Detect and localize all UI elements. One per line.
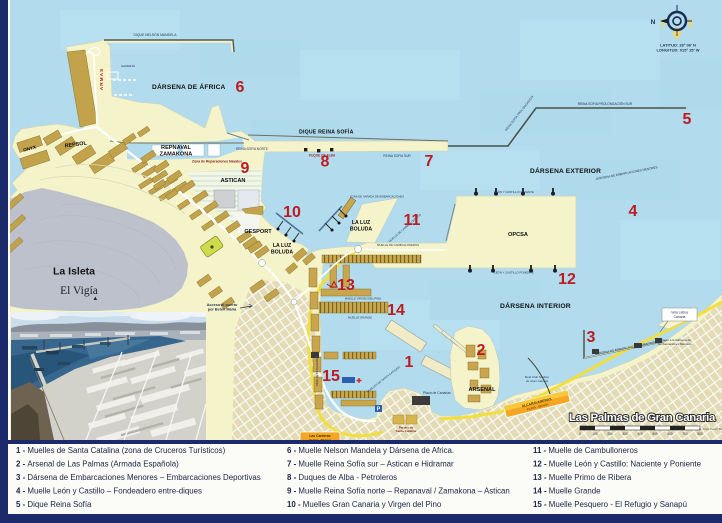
svg-text:Zona de Reparaciones Navales: Zona de Reparaciones Navales xyxy=(192,160,242,164)
svg-text:7 - Muelle Reina Sofía sur – A: 7 - Muelle Reina Sofía sur – Astican e H… xyxy=(287,460,454,469)
svg-text:5: 5 xyxy=(683,111,692,128)
svg-text:8 - Duques de Alba - Petrolero: 8 - Duques de Alba - Petroleros xyxy=(287,473,397,482)
svg-text:300: 300 xyxy=(622,432,628,436)
svg-text:8: 8 xyxy=(321,154,330,171)
svg-text:7: 7 xyxy=(425,153,434,170)
svg-text:LA LUZ: LA LUZ xyxy=(273,243,292,249)
svg-text:DÁRSENA EXTERIOR: DÁRSENA EXTERIOR xyxy=(530,166,601,175)
svg-text:MUELLE DE CAMBULLONEROS: MUELLE DE CAMBULLONEROS xyxy=(377,243,419,247)
svg-text:GAVIERAS: GAVIERAS xyxy=(121,64,135,68)
svg-text:REINA SOFIA SUR: REINA SOFIA SUR xyxy=(383,154,411,158)
svg-text:de Gran Canaria: de Gran Canaria xyxy=(526,379,549,383)
svg-text:ARSENAL: ARSENAL xyxy=(468,387,496,393)
svg-text:ARMAS: ARMAS xyxy=(99,68,105,91)
svg-text:4 - Muelle León y Castillo – F: 4 - Muelle León y Castillo – Fondeadero … xyxy=(16,487,202,496)
svg-text:ZONA DE VARADA DE EMBARCACIONE: ZONA DE VARADA DE EMBARCACIONES xyxy=(350,195,404,199)
svg-text:600: 600 xyxy=(667,432,673,436)
svg-text:11 - Muelle de Cambulloneros: 11 - Muelle de Cambulloneros xyxy=(533,446,638,455)
svg-text:4: 4 xyxy=(629,203,638,220)
svg-text:100: 100 xyxy=(592,432,598,436)
svg-text:por Belén María: por Belén María xyxy=(208,308,237,312)
svg-text:6: 6 xyxy=(236,79,245,96)
svg-text:Las Palmas de Gran Canaria: Las Palmas de Gran Canaria xyxy=(569,412,716,424)
svg-text:La Isleta: La Isleta xyxy=(53,266,95,278)
svg-text:2: 2 xyxy=(477,342,486,359)
svg-text:6 - Muelle Nelson Mandela y Dá: 6 - Muelle Nelson Mandela y Dársena de A… xyxy=(287,446,454,455)
svg-text:BOLUDA: BOLUDA xyxy=(271,249,293,255)
svg-text:REPNAVAL: REPNAVAL xyxy=(161,145,192,151)
svg-text:12: 12 xyxy=(558,271,576,288)
svg-text:REINA SOFIA PROLONGACIÓN SUR: REINA SOFIA PROLONGACIÓN SUR xyxy=(578,101,633,106)
svg-text:Santa Catalina: Santa Catalina xyxy=(396,429,417,433)
svg-text:3 - Dársena de Embarcaciones M: 3 - Dársena de Embarcaciones Menores – E… xyxy=(16,473,261,482)
svg-text:ASTICAN: ASTICAN xyxy=(221,178,246,184)
svg-text:P: P xyxy=(377,407,381,413)
svg-text:DIQUE NELSON MANDELA: DIQUE NELSON MANDELA xyxy=(134,33,178,37)
svg-text:LONGITUD: 015° 25' W: LONGITUD: 015° 25' W xyxy=(656,48,699,53)
svg-text:BOLUDA: BOLUDA xyxy=(350,226,372,232)
svg-text:2 - Arsenal de Las Palmas (Arm: 2 - Arsenal de Las Palmas (Armada Españo… xyxy=(16,460,179,469)
svg-text:3: 3 xyxy=(587,329,596,346)
svg-text:Embarcaciones Menores: Embarcaciones Menores xyxy=(658,342,692,346)
svg-text:10 - Muelles Gran Canaria y Vi: 10 - Muelles Gran Canaria y Virgen del P… xyxy=(287,500,442,509)
svg-text:El Vigía: El Vigía xyxy=(60,285,98,297)
svg-text:9: 9 xyxy=(241,160,250,177)
svg-text:13: 13 xyxy=(337,277,355,294)
svg-text:11: 11 xyxy=(404,212,421,229)
svg-text:DIQUE REINA SOFÍA: DIQUE REINA SOFÍA xyxy=(299,128,354,136)
svg-text:m. Gran Puerto Base: m. Gran Puerto Base xyxy=(699,427,722,431)
svg-text:500: 500 xyxy=(652,432,658,436)
svg-text:GESPORT: GESPORT xyxy=(244,229,272,235)
svg-text:REINA SOFIA NORTE: REINA SOFIA NORTE xyxy=(236,147,268,151)
svg-text:LEÓN Y CASTILLO NACIENTE: LEÓN Y CASTILLO NACIENTE xyxy=(494,189,534,194)
svg-text:0: 0 xyxy=(579,432,581,436)
svg-text:9 - Muelle Reina Sofía norte –: 9 - Muelle Reina Sofía norte – Repanaval… xyxy=(287,487,510,496)
svg-text:10: 10 xyxy=(283,204,301,221)
svg-text:N: N xyxy=(651,19,656,26)
svg-text:Acceso al puerto: Acceso al puerto xyxy=(207,303,238,307)
svg-text:MUELLE PESQUERO: MUELLE PESQUERO xyxy=(315,357,319,386)
svg-text:12 - Muelle León y Castillo: N: 12 - Muelle León y Castillo: Naciente y … xyxy=(533,460,702,469)
svg-text:DÁRSENA INTERIOR: DÁRSENA INTERIOR xyxy=(500,301,571,310)
svg-text:LEÓN Y CASTILLO PONIENTE: LEÓN Y CASTILLO PONIENTE xyxy=(494,270,534,275)
svg-text:200: 200 xyxy=(607,432,613,436)
svg-text:14 - Muelle Grande: 14 - Muelle Grande xyxy=(533,487,601,496)
svg-text:13 - Muelle Primo de Ribera: 13 - Muelle Primo de Ribera xyxy=(533,473,632,482)
svg-text:700: 700 xyxy=(682,432,688,436)
svg-text:LA LUZ: LA LUZ xyxy=(352,220,371,226)
svg-text:Plaza de Canarias: Plaza de Canarias xyxy=(423,391,451,395)
svg-text:14: 14 xyxy=(387,302,405,319)
svg-text:15 - Muelle Pesquero - El Refu: 15 - Muelle Pesquero - El Refugio y Sana… xyxy=(533,500,687,509)
svg-text:15: 15 xyxy=(322,368,340,385)
svg-text:800: 800 xyxy=(697,432,703,436)
svg-text:Vela Latina: Vela Latina xyxy=(671,311,688,315)
svg-text:MUELLE VIRGEN DEL PINO: MUELLE VIRGEN DEL PINO xyxy=(345,297,382,301)
svg-text:OPCSA: OPCSA xyxy=(508,232,528,238)
svg-text:1 - Muelles de Santa Catalina: 1 - Muelles de Santa Catalina (zona de C… xyxy=(16,446,226,455)
svg-text:400: 400 xyxy=(637,432,643,436)
svg-text:Canaria: Canaria xyxy=(674,315,686,319)
svg-text:ZAMAKONA: ZAMAKONA xyxy=(160,152,193,158)
svg-text:1: 1 xyxy=(405,354,414,371)
svg-text:MUELLE GRANDE: MUELLE GRANDE xyxy=(348,316,372,320)
svg-text:5 - Dique Reina Sofía: 5 - Dique Reina Sofía xyxy=(16,500,92,509)
svg-text:DÁRSENA DE ÁFRICA: DÁRSENA DE ÁFRICA xyxy=(152,82,226,91)
